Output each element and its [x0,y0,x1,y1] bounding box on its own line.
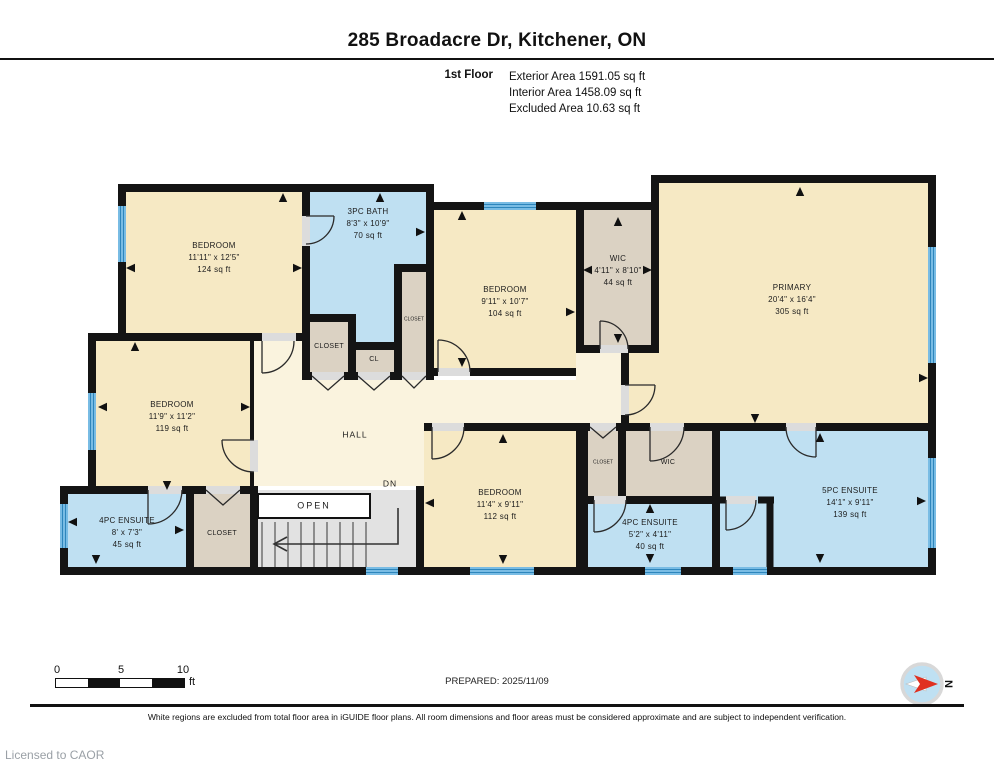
room-label-wic-bottom: WIC [661,458,676,469]
room-label-closet-a: CLOSET [314,342,344,353]
room-label-3pc-bath: 3PC BATH8'3" x 10'9"70 sq ft [346,206,389,242]
room-label-closet-c: CLOSET [207,529,237,540]
room-label-wic-top: WIC4'11" x 8'10"44 sq ft [594,253,641,289]
stairs-open-label: OPEN [297,499,331,513]
scale-tick-5: 5 [118,664,124,676]
room-label-bedroom-left: BEDROOM11'9" x 11'2"119 sq ft [149,399,196,435]
room-label-bedroom-mid: BEDROOM9'11" x 10'7"104 sq ft [481,284,528,320]
compass-north-label: N [942,680,954,688]
room-label-bedroom-top-left: BEDROOM11'11" x 12'5"124 sq ft [188,240,239,276]
floorplan-drawing [0,0,994,768]
prepared-date: PREPARED: 2025/11/09 [0,676,994,687]
room-label-closet-d: CLOSET [593,459,613,467]
stairs [250,490,424,571]
room-label-primary: PRIMARY20'4" x 16'4"305 sq ft [768,282,816,318]
license-text: Licensed to CAOR [5,748,104,762]
room-label-hall: HALL [342,429,367,442]
compass-icon: N [894,658,966,710]
footer-divider [30,704,964,707]
scale-tick-0: 0 [54,664,60,676]
room-label-bedroom-bottom: BEDROOM11'4" x 9'11"112 sq ft [477,487,524,523]
scale-tick-10: 10 [177,664,189,676]
room-label-cl: CL [369,355,379,366]
floorplan-page: 285 Broadacre Dr, Kitchener, ON 1st Floo… [0,0,994,768]
stairs-dn-label: DN [383,478,397,491]
disclaimer-text: White regions are excluded from total fl… [0,712,994,722]
room-label-4pc-ensuite-left: 4PC ENSUITE8' x 7'3"45 sq ft [99,515,155,551]
room-label-closet-b: CLOSET [404,316,424,324]
room-label-5pc-ensuite: 5PC ENSUITE14'1" x 9'11"139 sq ft [822,485,878,521]
room-label-4pc-ensuite-mid: 4PC ENSUITE5'2" x 4'11"40 sq ft [622,517,678,553]
